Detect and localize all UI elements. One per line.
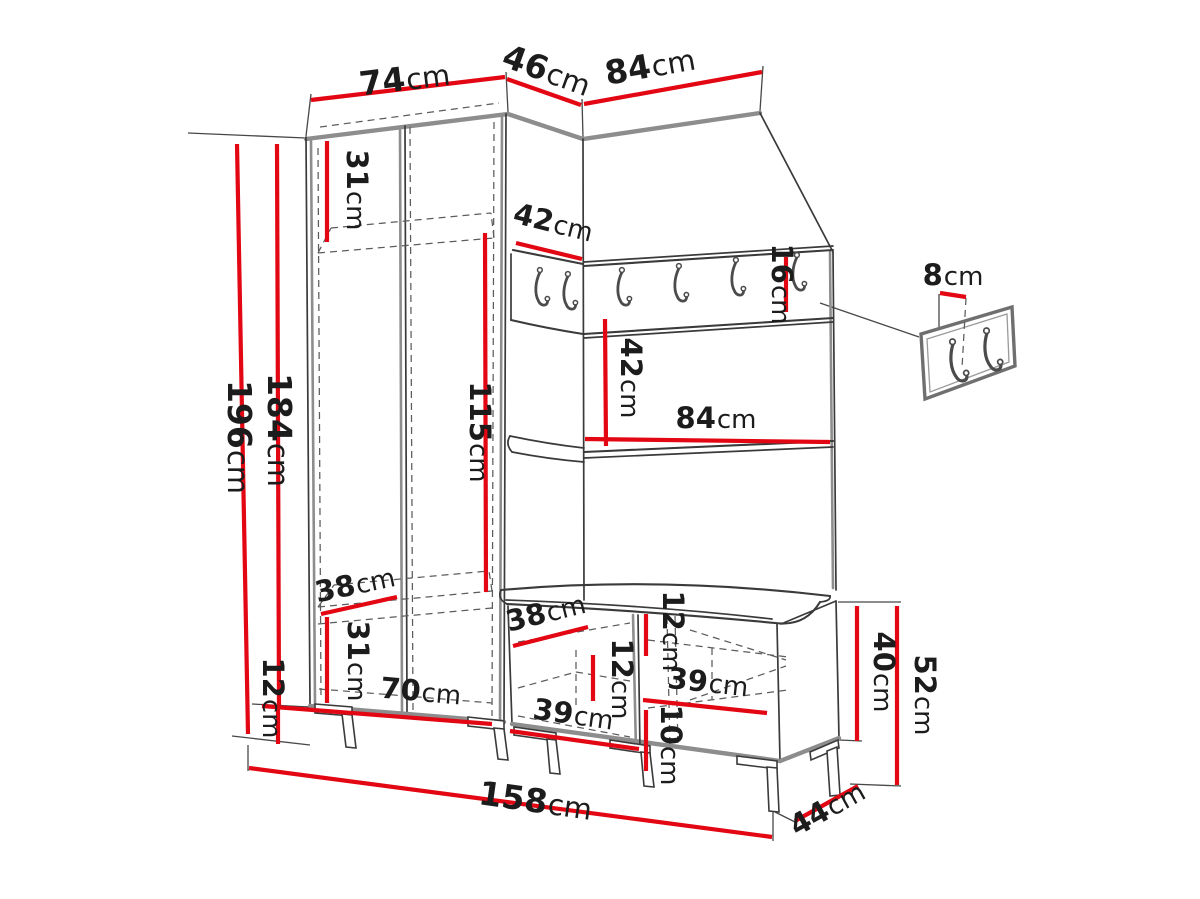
bench-front-right-corner bbox=[777, 624, 780, 761]
dim-158-label: 158cm bbox=[476, 773, 594, 827]
wardrobe-right-edge bbox=[504, 114, 506, 722]
detail-leader-line bbox=[820, 303, 919, 337]
leg bbox=[737, 756, 779, 812]
dim-12-leg-label: 12cm bbox=[256, 658, 290, 739]
panel-right-edge-upper bbox=[760, 113, 833, 252]
hook-icon bbox=[731, 257, 746, 295]
dim-31-top-label: 31cm bbox=[340, 150, 374, 231]
wardrobe-door-divider bbox=[405, 126, 407, 712]
dim-42-mirror-label: 42cm bbox=[614, 338, 648, 419]
dim-52-label: 52cm bbox=[908, 655, 942, 736]
dim-115-label: 115cm bbox=[463, 381, 497, 482]
corner-mid-shelf-bottom bbox=[512, 452, 584, 462]
dim-84-mirror-line bbox=[585, 439, 830, 442]
dim-8-label: 8cm bbox=[923, 258, 984, 292]
hook-plate bbox=[921, 307, 1015, 399]
dim-8-line bbox=[940, 293, 966, 297]
dim-44-label: 44cm bbox=[783, 774, 870, 843]
dim-40-label: 40cm bbox=[867, 632, 901, 713]
dim-84-mirror-label: 84cm bbox=[676, 401, 757, 435]
bench-side-top bbox=[781, 601, 836, 624]
hook-icon bbox=[617, 267, 632, 305]
dim-74-label: 74cm bbox=[357, 54, 452, 104]
hook-icon bbox=[563, 271, 578, 309]
corner-right-edge bbox=[583, 139, 584, 600]
dim-31-lower-label: 31cm bbox=[341, 621, 375, 702]
wardrobe-left-edge bbox=[306, 137, 310, 706]
hook-plate-detail bbox=[921, 298, 1015, 399]
bench-divider bbox=[638, 615, 640, 750]
furniture-dimension-diagram: 74cm 46cm 84cm 196cm 184cm 31cm 42cm 16c… bbox=[0, 0, 1200, 899]
bench-side-right-edge bbox=[836, 601, 839, 738]
corner-board-bottom bbox=[511, 320, 583, 334]
dim-42-mirror-line bbox=[605, 319, 606, 446]
dim-16-label: 16cm bbox=[765, 244, 799, 325]
dim-10-label: 10cm bbox=[654, 705, 688, 786]
corner-mid-shelf-top bbox=[510, 436, 584, 448]
dim-70-label: 70cm bbox=[379, 671, 463, 712]
hook-icon bbox=[535, 267, 550, 305]
dim-196-label: 196cm bbox=[220, 380, 259, 494]
dim-39-right-label: 39cm bbox=[666, 661, 750, 703]
dim-184-label: 184cm bbox=[260, 373, 299, 487]
unit-top-edge bbox=[306, 113, 760, 139]
hook-icon bbox=[674, 263, 689, 301]
diagram-canvas: 74cm 46cm 84cm 196cm 184cm 31cm 42cm 16c… bbox=[0, 0, 1200, 899]
dim-12-bench-top-label: 12cm bbox=[656, 591, 690, 672]
